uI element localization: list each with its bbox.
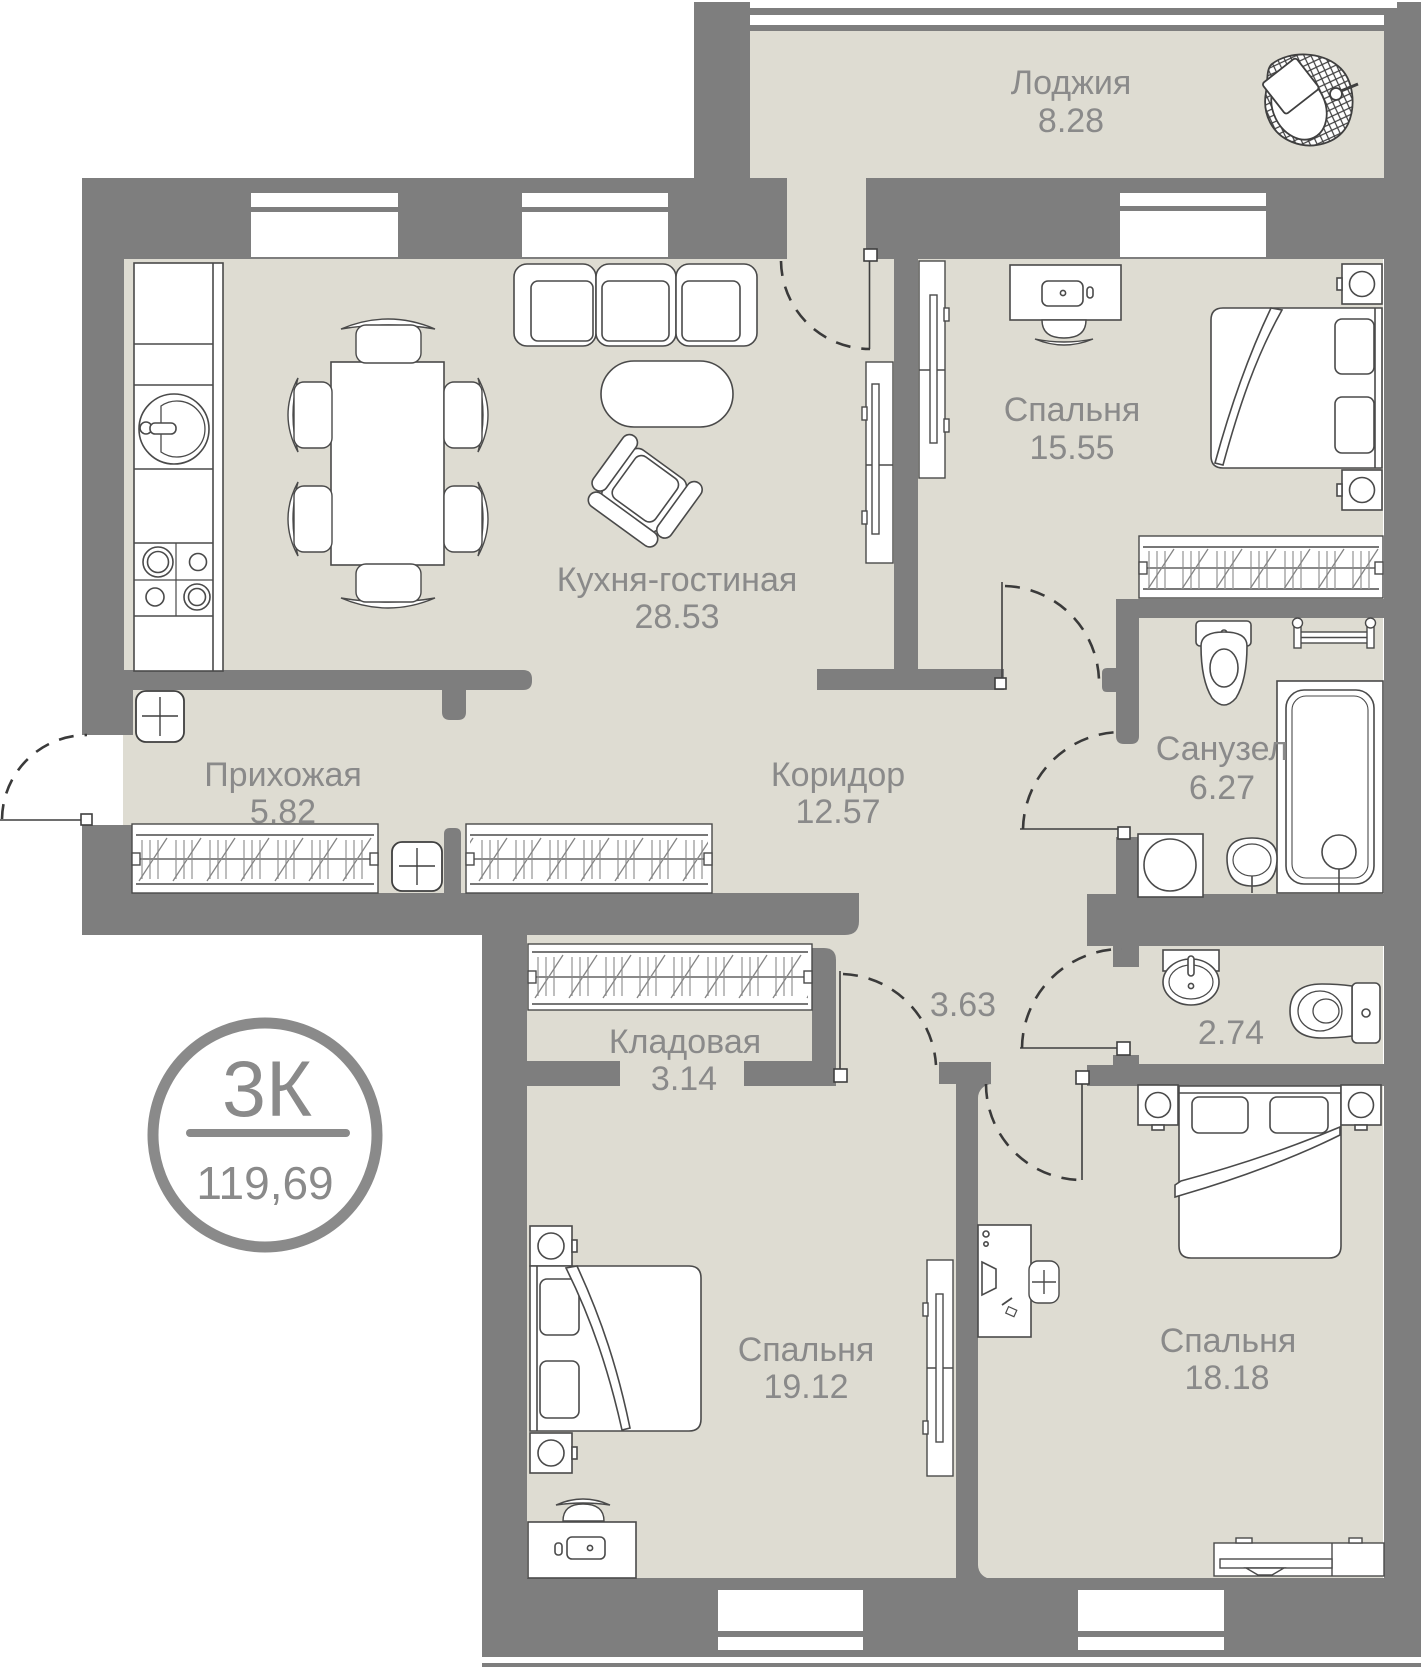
svg-text:8.28: 8.28: [1038, 102, 1104, 140]
svg-text:2.74: 2.74: [1198, 1014, 1264, 1052]
svg-text:Лоджия: Лоджия: [1011, 64, 1131, 102]
svg-text:Санузел: Санузел: [1156, 730, 1288, 768]
svg-text:Коридор: Коридор: [771, 756, 905, 794]
svg-text:Спальня: Спальня: [1004, 391, 1141, 429]
svg-text:Прихожая: Прихожая: [204, 756, 362, 794]
svg-text:Спальня: Спальня: [738, 1331, 875, 1369]
svg-text:3.14: 3.14: [651, 1060, 717, 1098]
svg-text:12.57: 12.57: [795, 793, 880, 831]
svg-text:3.63: 3.63: [930, 986, 996, 1024]
svg-text:3К: 3К: [222, 1044, 312, 1133]
svg-text:5.82: 5.82: [250, 793, 316, 831]
svg-text:19.12: 19.12: [763, 1368, 848, 1406]
svg-text:15.55: 15.55: [1029, 429, 1114, 467]
svg-text:Кладовая: Кладовая: [609, 1023, 761, 1061]
svg-text:Кухня-гостиная: Кухня-гостиная: [557, 561, 798, 599]
svg-text:28.53: 28.53: [634, 598, 719, 636]
svg-text:Спальня: Спальня: [1160, 1322, 1297, 1360]
svg-text:6.27: 6.27: [1189, 769, 1255, 807]
svg-text:119,69: 119,69: [196, 1157, 333, 1209]
svg-text:18.18: 18.18: [1184, 1359, 1269, 1397]
